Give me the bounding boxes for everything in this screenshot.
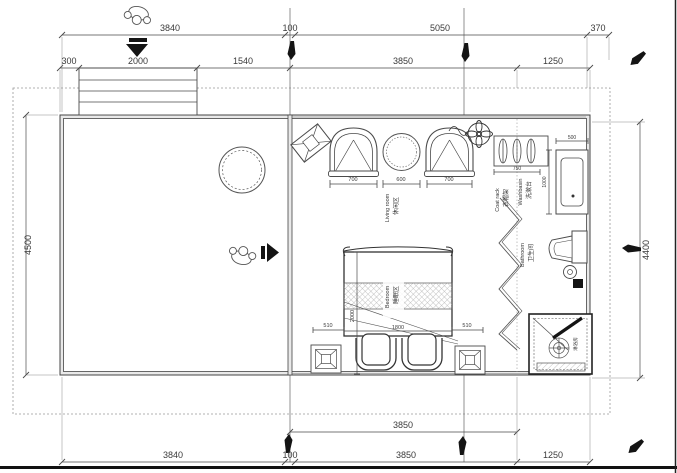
label-washbasin-zh: 洗漱台 (525, 181, 533, 199)
shower-bench (537, 363, 585, 371)
shower-drain-icon (549, 338, 569, 358)
dim-bottom-3850: 3850 (396, 450, 416, 460)
label-bathroom-zh: 卫生间 (527, 244, 535, 262)
faucet-icon (572, 195, 575, 198)
pen-marker-icon (459, 436, 467, 455)
armchair-left (329, 128, 379, 177)
nightstand-left (311, 345, 341, 373)
label-bedroom-zh: 睡眠区 (392, 286, 400, 304)
dim-top2-1250: 1250 (543, 56, 563, 66)
dim-bottom-1250: 1250 (543, 450, 563, 460)
entry-arrow-down-icon (126, 38, 148, 57)
label-living-zh: 休闲区 (392, 197, 400, 215)
dim-table-600: 600 (396, 177, 405, 183)
dim-chair-700: 700 (348, 177, 357, 183)
dim-top2-2000: 2000 (128, 56, 148, 66)
dim-top-100: 100 (282, 23, 297, 33)
floor-plan-drawing: 3840 100 5050 370 300 2000 1540 3850 125… (0, 0, 677, 473)
pen-marker-icon (288, 41, 296, 60)
foot-chair-right (402, 334, 442, 370)
pen-marker-icon (622, 245, 641, 253)
dim-top-5050: 5050 (430, 23, 450, 33)
dim-bed-1800: 1800 (392, 325, 404, 331)
label-bathroom-en: Bathroom (520, 243, 526, 267)
dim-bed-510-left: 510 (323, 323, 332, 329)
dim-bottom-3840: 3840 (163, 450, 183, 460)
entrance-steps (79, 68, 197, 115)
dim-top2-1540: 1540 (233, 56, 253, 66)
label-shower-zh: 淋浴房 (572, 337, 579, 351)
washbasin (556, 150, 588, 214)
control-box-icon (573, 279, 583, 288)
dim-top2-300: 300 (61, 56, 76, 66)
label-coatrack-zh: 衣帽架 (502, 189, 510, 207)
top-person-icon (123, 3, 154, 57)
page-border-bottom (0, 466, 677, 469)
nightstand-right (455, 346, 485, 374)
floor-plan-page: 3840 100 5050 370 300 2000 1540 3850 125… (0, 0, 677, 473)
shower-stall (529, 314, 592, 374)
dim-top-3840: 3840 (160, 23, 180, 33)
dim-bottom-100: 100 (282, 450, 297, 460)
dim-chair-700b: 700 (444, 177, 453, 183)
label-washbasin-en: Washbasin (518, 178, 524, 205)
dim-top-370: 370 (590, 23, 605, 33)
label-bedroom-en: Bedroom (385, 285, 391, 308)
label-living-en: Living room (385, 193, 391, 222)
dim-bottominner-3850: 3850 (393, 420, 413, 430)
label-coatrack-en: Coat rack (495, 188, 501, 212)
dim-top2-3850: 3850 (393, 56, 413, 66)
dim-left-4500: 4500 (23, 235, 33, 255)
foot-chair-left (356, 334, 396, 370)
armchair-right (425, 128, 475, 177)
dim-bed-510-right: 510 (462, 323, 471, 329)
partition-wall (288, 115, 292, 375)
coat-rack (494, 136, 548, 166)
dim-coatrack-750: 750 (513, 166, 522, 172)
dim-washbasin-500: 500 (568, 135, 577, 141)
dim-washbasin-1000: 1000 (542, 176, 548, 187)
dim-bed-2000: 2000 (350, 310, 356, 322)
pen-marker-icon (628, 49, 647, 68)
pen-marker-icon (626, 437, 645, 456)
dim-right-4400: 4400 (641, 240, 651, 260)
pen-marker-icon (462, 43, 470, 62)
